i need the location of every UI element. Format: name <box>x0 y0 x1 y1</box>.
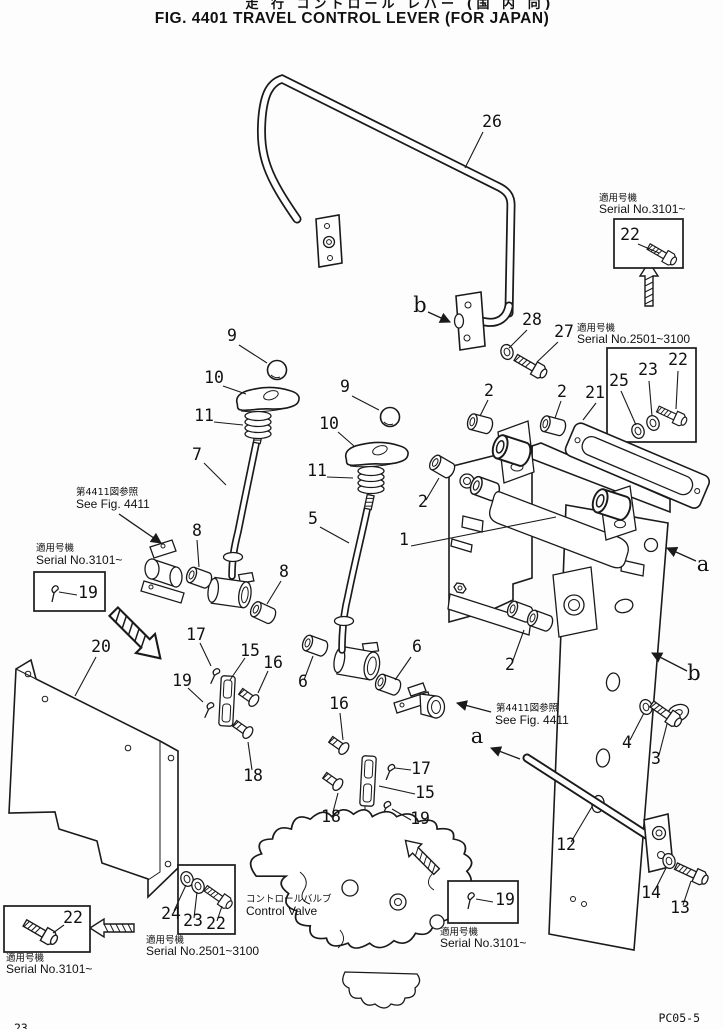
callout-2-b: 2 <box>557 382 567 401</box>
cam-plate-10-right <box>345 439 409 469</box>
callout-27: 27 <box>554 322 574 341</box>
hatched-arrow-left-icon <box>90 919 134 937</box>
callout-22-bottom-left: 22 <box>63 908 83 927</box>
callout-17-b: 17 <box>411 759 431 778</box>
callout-2-a: 2 <box>484 381 494 400</box>
callout-7: 7 <box>192 445 202 464</box>
callout-22-right: 22 <box>668 350 688 369</box>
note-serial-left: Serial No.3101~ <box>36 553 122 567</box>
callout-18-a: 18 <box>243 766 263 785</box>
see-fig-left-en: See Fig. 4411 <box>76 497 150 511</box>
knob-9-left <box>268 361 287 380</box>
callout-22-top-right: 22 <box>620 225 640 244</box>
note-serial-right: Serial No.2501~3100 <box>577 332 690 346</box>
callout-16-a: 16 <box>263 653 283 672</box>
callout-15-b: 15 <box>415 783 435 802</box>
callout-15-a: 15 <box>240 641 260 660</box>
lever-7-assy <box>206 428 263 608</box>
cam-plate-10-left <box>236 384 300 414</box>
callout-24: 24 <box>161 904 181 923</box>
callout-20: 20 <box>91 637 111 656</box>
doc-code: PC05-5 <box>658 1011 700 1025</box>
callout-5: 5 <box>308 509 318 528</box>
note-serial-bottom-left: Serial No.3101~ <box>6 962 92 976</box>
handle-bar-26 <box>261 79 511 350</box>
note-serial-bottom-middle: Serial No.2501~3100 <box>146 944 259 958</box>
callout-10-right: 10 <box>319 414 339 433</box>
callout-3: 3 <box>651 749 661 768</box>
handle-mount-plate-right <box>455 292 486 350</box>
exploded-diagram: 走 行 コントロール レバー (国 内 向) FIG. 4401 TRAVEL … <box>0 0 723 1029</box>
spring-11-left <box>245 412 271 439</box>
callout-17-a: 17 <box>186 625 206 644</box>
ref-letter-b-right: b <box>687 661 700 685</box>
callout-13: 13 <box>670 898 690 917</box>
callout-25: 25 <box>609 371 629 390</box>
callout-11-right: 11 <box>307 461 327 480</box>
callout-28: 28 <box>522 310 542 329</box>
callout-11-left: 11 <box>194 406 214 425</box>
callout-23-right: 23 <box>638 360 658 379</box>
note-serial-bottom-right: Serial No.3101~ <box>440 936 526 950</box>
spring-11-right <box>358 467 384 494</box>
control-valve-label-en: Control Valve <box>246 904 317 918</box>
callout-26: 26 <box>482 112 502 131</box>
handle-mount-plate-left <box>316 215 342 267</box>
note-serial-top-right: Serial No.3101~ <box>599 202 685 216</box>
callout-6-a: 6 <box>298 672 308 691</box>
hatched-arrow-down-right-icon <box>104 602 170 668</box>
callout-6-b: 6 <box>412 637 422 656</box>
linkage-bracket-left <box>141 540 184 603</box>
lever-5-assy <box>332 494 383 681</box>
callout-1: 1 <box>399 530 409 549</box>
callout-8-b: 8 <box>279 562 289 581</box>
cover-plate-20 <box>9 660 178 897</box>
callout-9-right: 9 <box>340 377 350 396</box>
callout-19-bottom-right-box: 19 <box>495 890 515 909</box>
ref-letter-a-right: a <box>697 552 710 576</box>
ref-letter-a-bottom: a <box>471 724 484 748</box>
ref-letter-b-top: b <box>413 293 426 317</box>
linkage-bracket-right <box>394 683 445 718</box>
callout-10-left: 10 <box>204 368 224 387</box>
callout-14: 14 <box>641 883 661 902</box>
callout-9-left: 9 <box>227 326 237 345</box>
callout-22-bottom-middle: 22 <box>206 914 226 933</box>
washer-28 <box>499 343 514 361</box>
knob-9-right <box>381 408 400 427</box>
callout-2-d: 2 <box>505 655 515 674</box>
callout-19-b: 19 <box>410 809 430 828</box>
figure-title-en: FIG. 4401 TRAVEL CONTROL LEVER (FOR JAPA… <box>155 10 549 27</box>
page-number: 23 <box>14 1021 28 1029</box>
callout-4: 4 <box>622 733 632 752</box>
callout-21: 21 <box>585 383 605 402</box>
callout-2-c: 2 <box>418 492 428 511</box>
callout-19-left-box: 19 <box>78 583 98 602</box>
callout-23-bottom: 23 <box>183 911 203 930</box>
parts-catalog-page: 走 行 コントロール レバー (国 内 向) FIG. 4401 TRAVEL … <box>0 0 723 1029</box>
callout-19-a: 19 <box>172 671 192 690</box>
callout-16-b: 16 <box>329 694 349 713</box>
bolt-13 <box>673 860 710 887</box>
see-fig-right-en: See Fig. 4411 <box>495 713 569 727</box>
callout-18-b: 18 <box>321 807 341 826</box>
callout-12: 12 <box>556 835 576 854</box>
callout-8-a: 8 <box>192 521 202 540</box>
